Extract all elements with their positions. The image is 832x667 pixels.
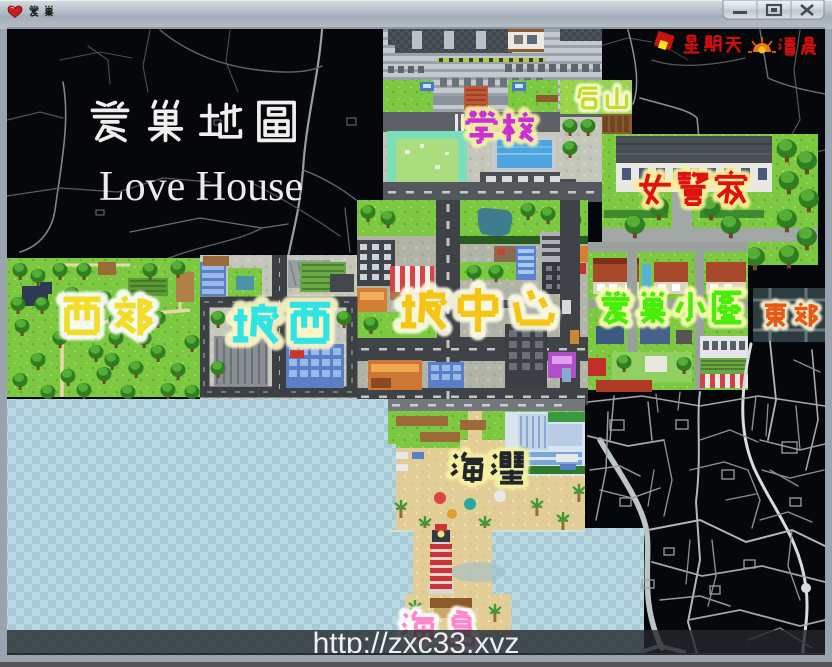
svg-text:Love House: Love House [99, 164, 303, 210]
